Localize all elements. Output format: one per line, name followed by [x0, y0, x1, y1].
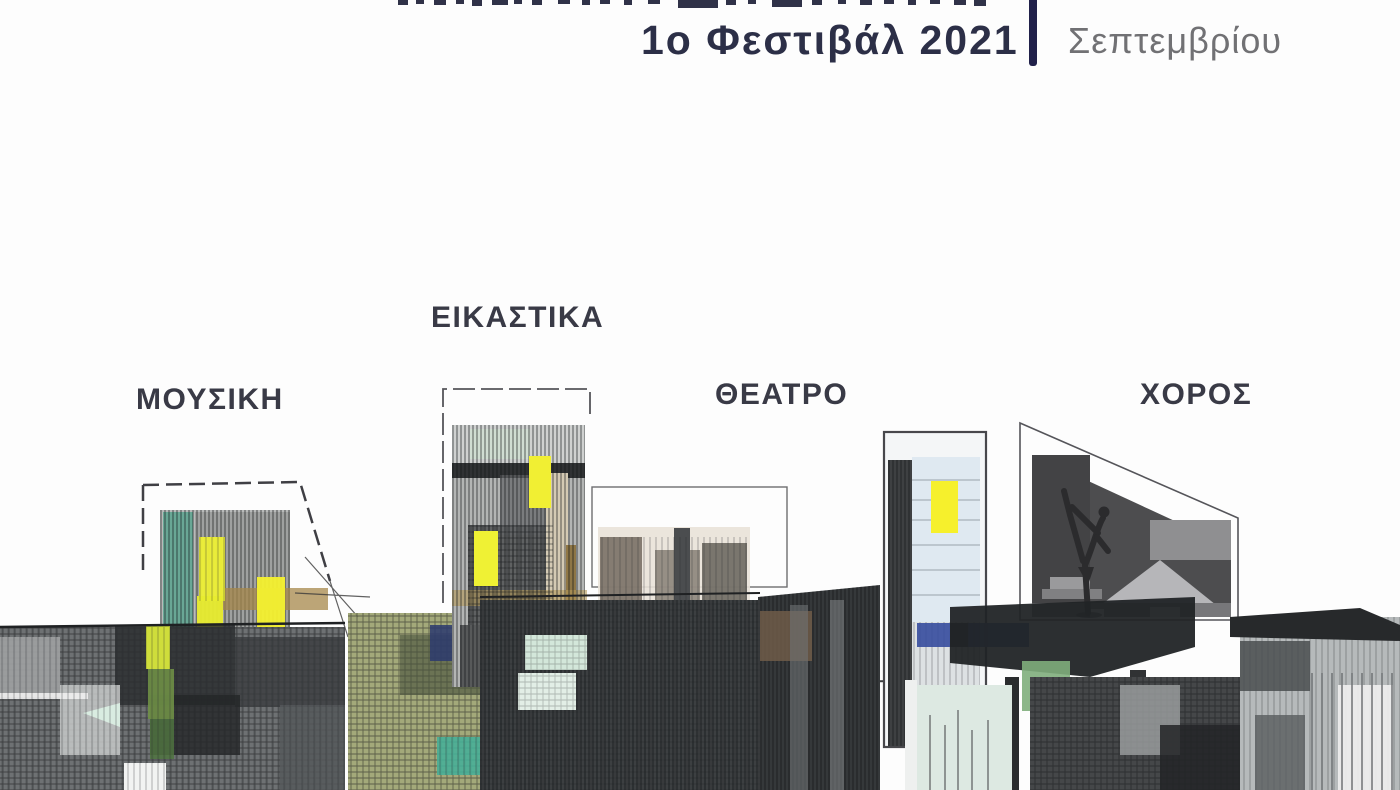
month-label: Σεπτεμβρίου	[1068, 18, 1282, 64]
far-right-panel	[1230, 608, 1400, 790]
category-label-visual-arts: ΕΙΚΑΣΤΙΚΑ	[431, 301, 604, 335]
dance-building	[1020, 423, 1238, 620]
architectural-collage	[0, 385, 1400, 790]
center-charcoal-mass	[480, 600, 760, 790]
festival-edition-title: 1ο Φεστιβάλ 2021	[641, 16, 1019, 64]
right-base-blocks	[905, 597, 1240, 790]
header-divider-bar	[1029, 0, 1037, 66]
cropped-title-remnants	[0, 0, 1400, 16]
festival-poster: 1ο Φεστιβάλ 2021 Σεπτεμβρίου ΜΟΥΣΙΚΗ ΕΙΚ…	[0, 0, 1400, 790]
left-base-blocks	[0, 623, 345, 790]
